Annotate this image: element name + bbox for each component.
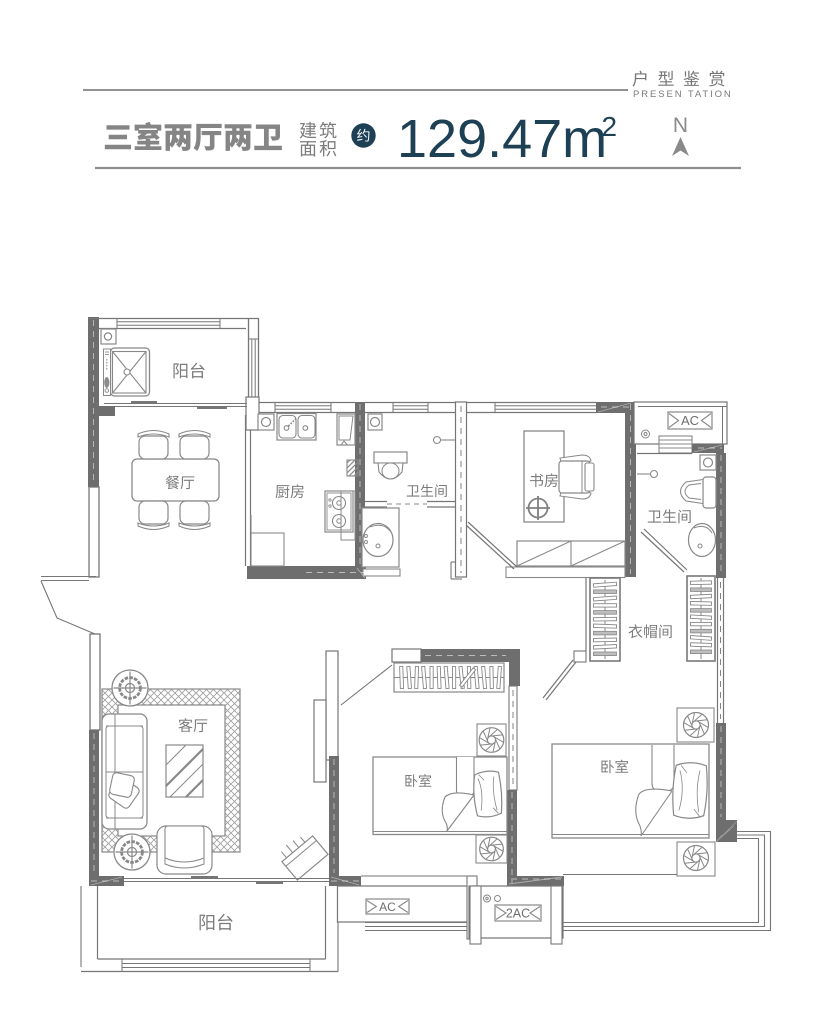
- svg-text:AC: AC: [379, 900, 396, 914]
- svg-text:AC: AC: [681, 413, 699, 428]
- svg-text:2AC: 2AC: [506, 907, 530, 921]
- svg-text:2: 2: [602, 111, 618, 142]
- svg-text:PRESEN TATION: PRESEN TATION: [633, 89, 733, 100]
- svg-text:N: N: [673, 114, 688, 137]
- svg-text:129.47m: 129.47m: [397, 109, 607, 169]
